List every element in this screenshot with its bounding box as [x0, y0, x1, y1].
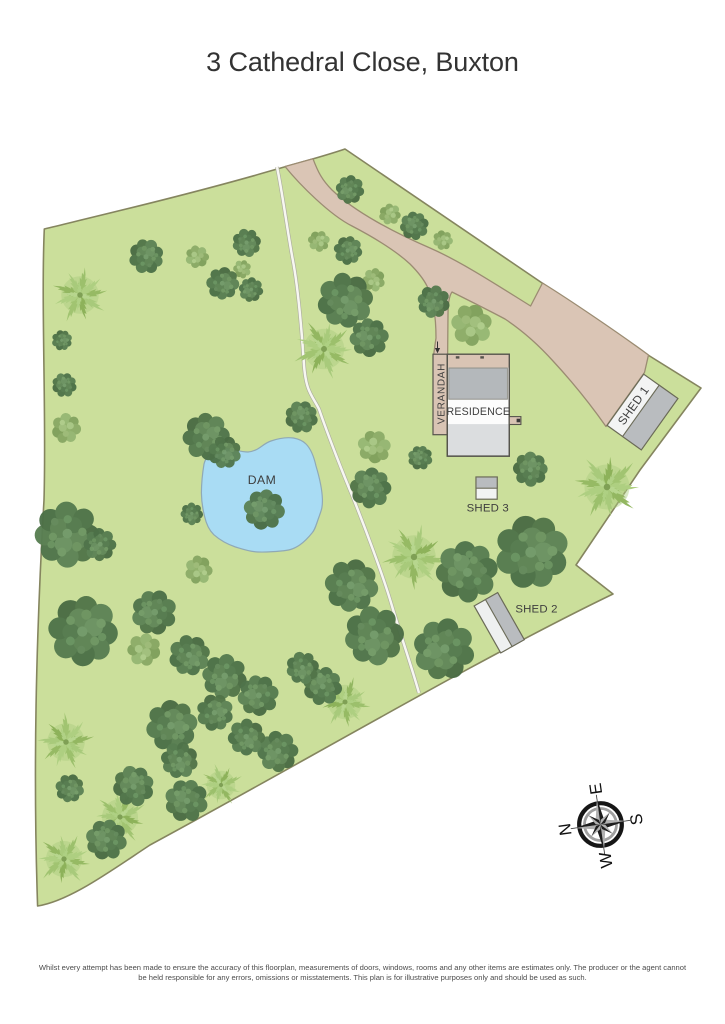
svg-text:W: W [595, 851, 616, 870]
svg-text:RESIDENCE: RESIDENCE [446, 406, 510, 418]
svg-text:E: E [586, 782, 606, 796]
svg-text:N: N [555, 822, 576, 837]
svg-text:SHED 2: SHED 2 [515, 604, 557, 616]
svg-text:VERANDAH: VERANDAH [436, 363, 447, 424]
svg-text:S: S [626, 812, 646, 826]
svg-text:SHED 3: SHED 3 [467, 503, 509, 515]
svg-text:DAM: DAM [248, 473, 277, 487]
